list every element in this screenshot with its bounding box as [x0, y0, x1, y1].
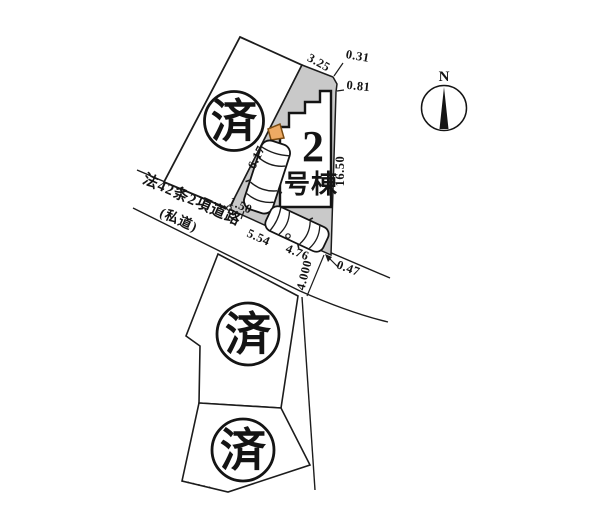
dim-offset-a: 0.31: [345, 47, 371, 65]
site-plan-svg: 2 号棟 済 済 済: [0, 0, 600, 509]
north-label: N: [439, 69, 450, 85]
sold-stamp-bottom: 済: [212, 419, 274, 481]
site-plan: 2 号棟 済 済 済: [0, 0, 600, 509]
north-indicator: N: [422, 69, 467, 131]
north-needle: [440, 87, 449, 129]
sold-stamp-text: 済: [211, 96, 258, 147]
dim-east-boundary: 16.50: [333, 156, 347, 187]
dim-southeast-offset: 0.47: [335, 258, 362, 279]
building-number: 2: [302, 122, 324, 171]
building-suffix: 号棟: [284, 170, 338, 199]
sold-stamp-northwest: 済: [205, 92, 264, 151]
sold-stamp-text: 済: [220, 425, 267, 476]
leader-0-81: [337, 90, 344, 91]
dim-offset-b: 0.81: [346, 78, 371, 94]
leader-0-31: [334, 63, 343, 76]
boundary-point-marker: [286, 234, 290, 238]
sold-stamp-text: 済: [225, 309, 272, 360]
sold-stamp-middle: 済: [217, 303, 279, 365]
